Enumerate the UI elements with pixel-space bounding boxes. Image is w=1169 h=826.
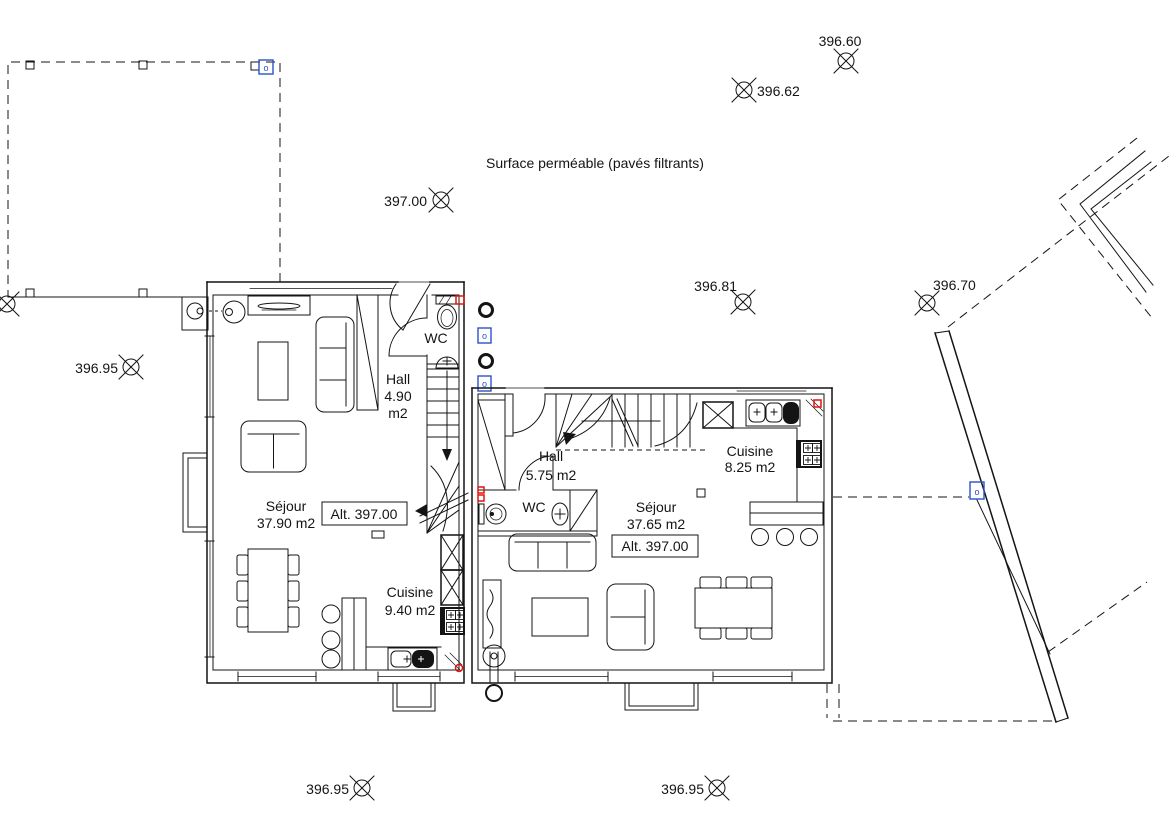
elevation-label: 396.95 <box>75 360 118 376</box>
room-label-sejour: Séjour <box>636 499 677 515</box>
elevation-label: 396.95 <box>306 781 349 797</box>
survey-cross-icon <box>915 291 939 315</box>
survey-cross-icon <box>705 776 729 800</box>
survey-cross-icon <box>731 290 755 314</box>
room-label-hall: Hall <box>539 448 563 464</box>
survey-cross-icon <box>732 78 756 102</box>
paper-background <box>0 0 1169 826</box>
altitude-label: Alt. 397.00 <box>622 538 689 554</box>
survey-cross-icon <box>834 49 858 73</box>
floor-plan-drawing: o o 396.60 396.62 397.00 <box>0 0 1169 826</box>
room-label-sejour: Séjour <box>266 498 307 514</box>
elevation-label: 396.81 <box>694 278 737 294</box>
room-area-unit-hall: m2 <box>388 405 408 421</box>
survey-cross-icon <box>119 355 143 379</box>
room-area-cuisine: 8.25 m2 <box>725 459 776 475</box>
floor-plan-canvas: o o 396.60 396.62 397.00 <box>0 0 1169 826</box>
port-marker-label: o <box>263 63 268 73</box>
room-label-cuisine: Cuisine <box>727 443 774 459</box>
room-area-sejour: 37.65 m2 <box>627 516 686 532</box>
surface-permeable-label: Surface perméable (pavés filtrants) <box>486 155 704 171</box>
elevation-label: 396.95 <box>661 781 704 797</box>
room-label-cuisine: Cuisine <box>387 584 434 600</box>
sink-basin-dark <box>783 402 799 424</box>
survey-cross-icon <box>350 776 374 800</box>
port-marker-label: o <box>974 487 979 497</box>
port-marker-label: o <box>482 331 487 341</box>
elevation-label: 397.00 <box>384 193 427 209</box>
elevation-label: 396.70 <box>933 277 976 293</box>
room-label-wc: WC <box>522 499 545 515</box>
room-area-hall: 5.75 m2 <box>526 467 577 483</box>
altitude-label: Alt. 397.00 <box>331 506 398 522</box>
room-area-sejour: 37.90 m2 <box>257 515 316 531</box>
survey-cross-icon <box>429 188 453 212</box>
room-area-cuisine: 9.40 m2 <box>385 602 436 618</box>
room-area-hall: 4.90 <box>384 388 411 404</box>
room-label-wc: WC <box>424 330 447 346</box>
room-label-hall: Hall <box>386 371 410 387</box>
elevation-label: 396.62 <box>757 83 800 99</box>
elevation-label: 396.60 <box>819 33 862 49</box>
